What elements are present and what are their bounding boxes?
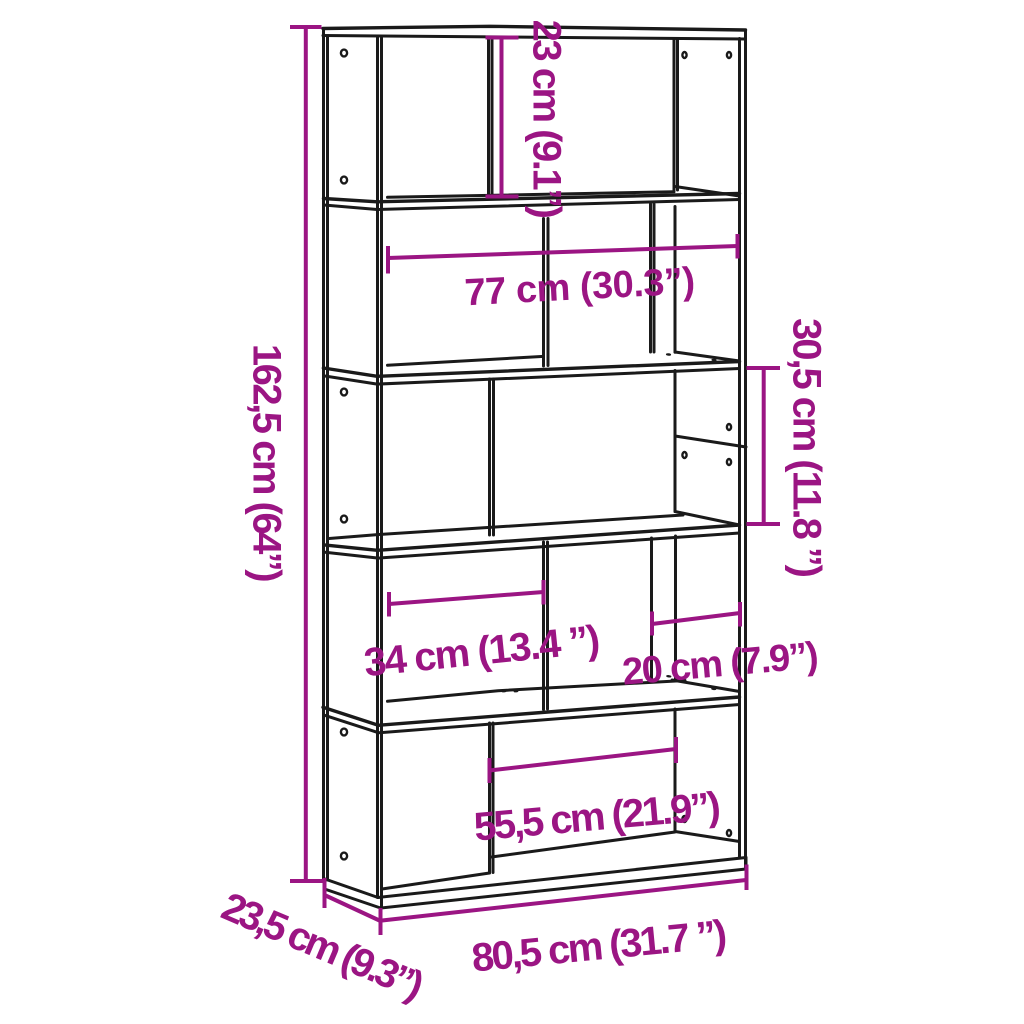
svg-text:30,5 cm (11.8 ”): 30,5 cm (11.8 ”): [785, 318, 829, 576]
svg-text:162,5 cm (64”): 162,5 cm (64”): [245, 344, 289, 581]
svg-text:23 cm (9.1”): 23 cm (9.1”): [525, 20, 569, 218]
